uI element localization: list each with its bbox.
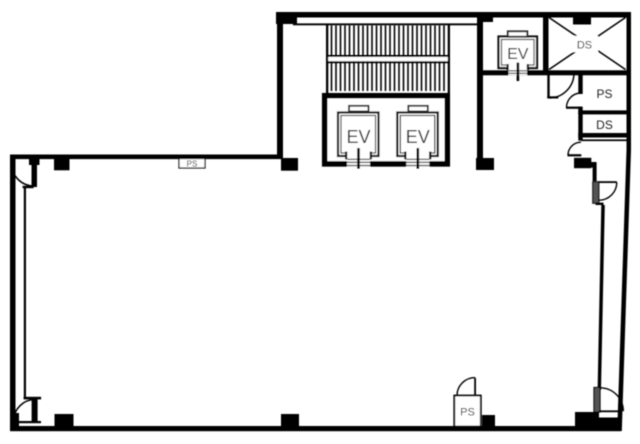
svg-text:EV: EV: [346, 127, 370, 147]
svg-text:EV: EV: [406, 127, 430, 147]
svg-text:PS: PS: [460, 407, 475, 419]
svg-text:PS: PS: [596, 87, 612, 101]
svg-text:EV: EV: [507, 46, 529, 63]
svg-text:DS: DS: [596, 118, 613, 132]
svg-text:DS: DS: [577, 40, 592, 52]
svg-text:PS: PS: [187, 159, 198, 168]
